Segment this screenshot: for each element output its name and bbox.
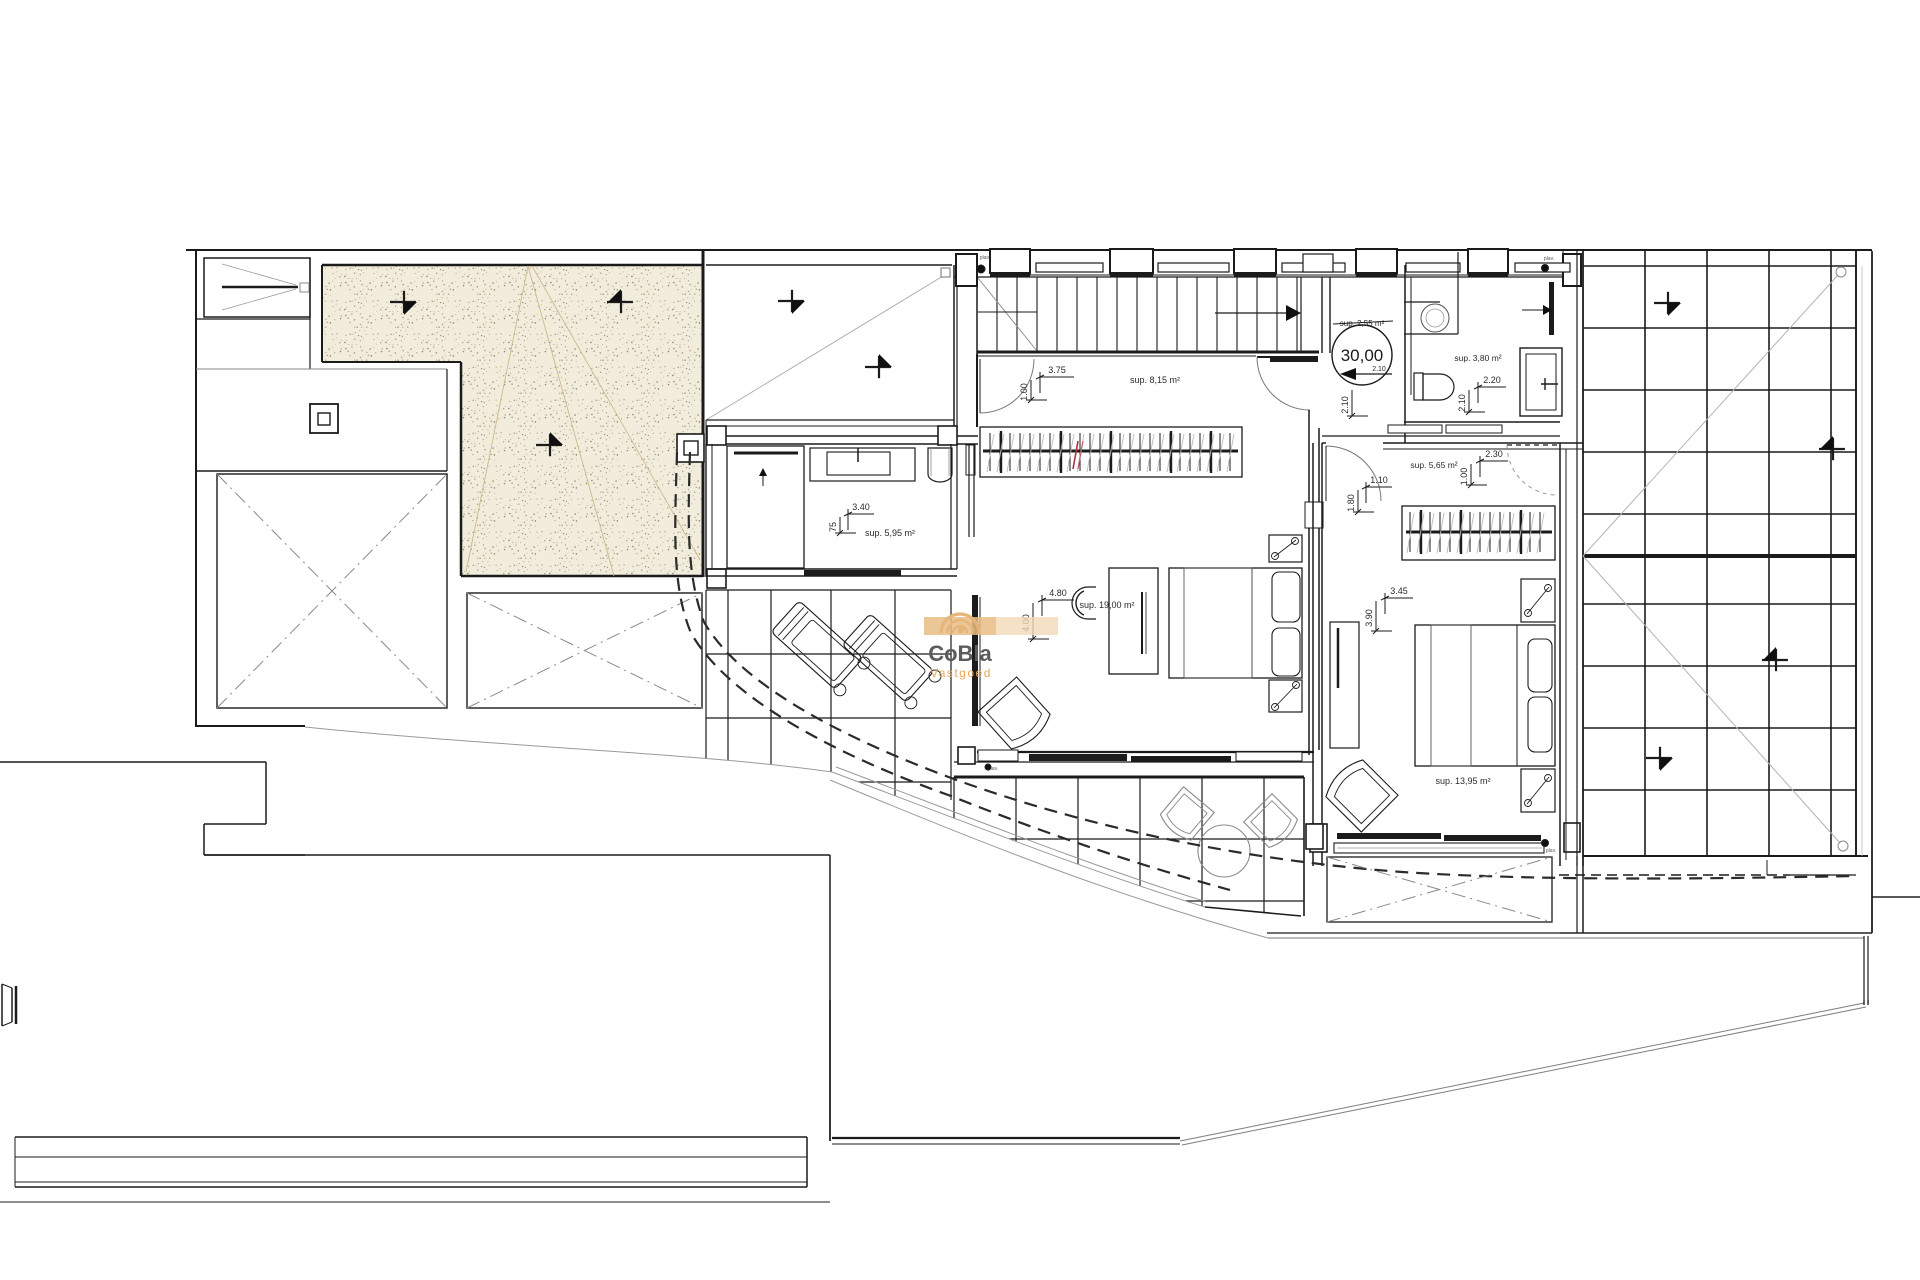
svg-text:1.00: 1.00 [1459, 468, 1469, 486]
svg-text:sup. 19,00 m²: sup. 19,00 m² [1079, 600, 1134, 610]
svg-text:sup. 5,95 m²: sup. 5,95 m² [865, 528, 915, 538]
svg-text:3.90: 3.90 [1364, 609, 1374, 627]
svg-text:75: 75 [828, 522, 838, 532]
svg-text:3.40: 3.40 [852, 502, 870, 512]
svg-text:2.10: 2.10 [1457, 394, 1467, 412]
svg-text:1.80: 1.80 [1346, 494, 1356, 512]
svg-text:4.80: 4.80 [1049, 588, 1067, 598]
svg-text:sup. 8,15 m²: sup. 8,15 m² [1130, 375, 1180, 385]
svg-text:sup. 13,95 m²: sup. 13,95 m² [1435, 776, 1490, 786]
svg-text:1.10: 1.10 [1370, 475, 1388, 485]
svg-text:3.45: 3.45 [1390, 586, 1408, 596]
svg-text:plav.: plav. [1544, 256, 1554, 262]
svg-text:2.10: 2.10 [1340, 396, 1350, 414]
svg-text:30,00: 30,00 [1341, 346, 1384, 365]
svg-text:2.10: 2.10 [1372, 366, 1386, 373]
svg-text:CoBla: CoBla [928, 641, 992, 666]
svg-text:sup. 5,65 m²: sup. 5,65 m² [1410, 460, 1457, 470]
svg-text:2.30: 2.30 [1485, 449, 1503, 459]
svg-text:2.20: 2.20 [1483, 375, 1501, 385]
svg-text:1.00: 1.00 [1019, 383, 1029, 401]
svg-text:plav.: plav. [1546, 848, 1556, 854]
svg-text:plav.: plav. [980, 255, 990, 261]
svg-text:3.75: 3.75 [1048, 365, 1066, 375]
svg-text:Vastgoed: Vastgoed [930, 666, 992, 680]
svg-text:sup. 3,80 m²: sup. 3,80 m² [1454, 353, 1501, 363]
